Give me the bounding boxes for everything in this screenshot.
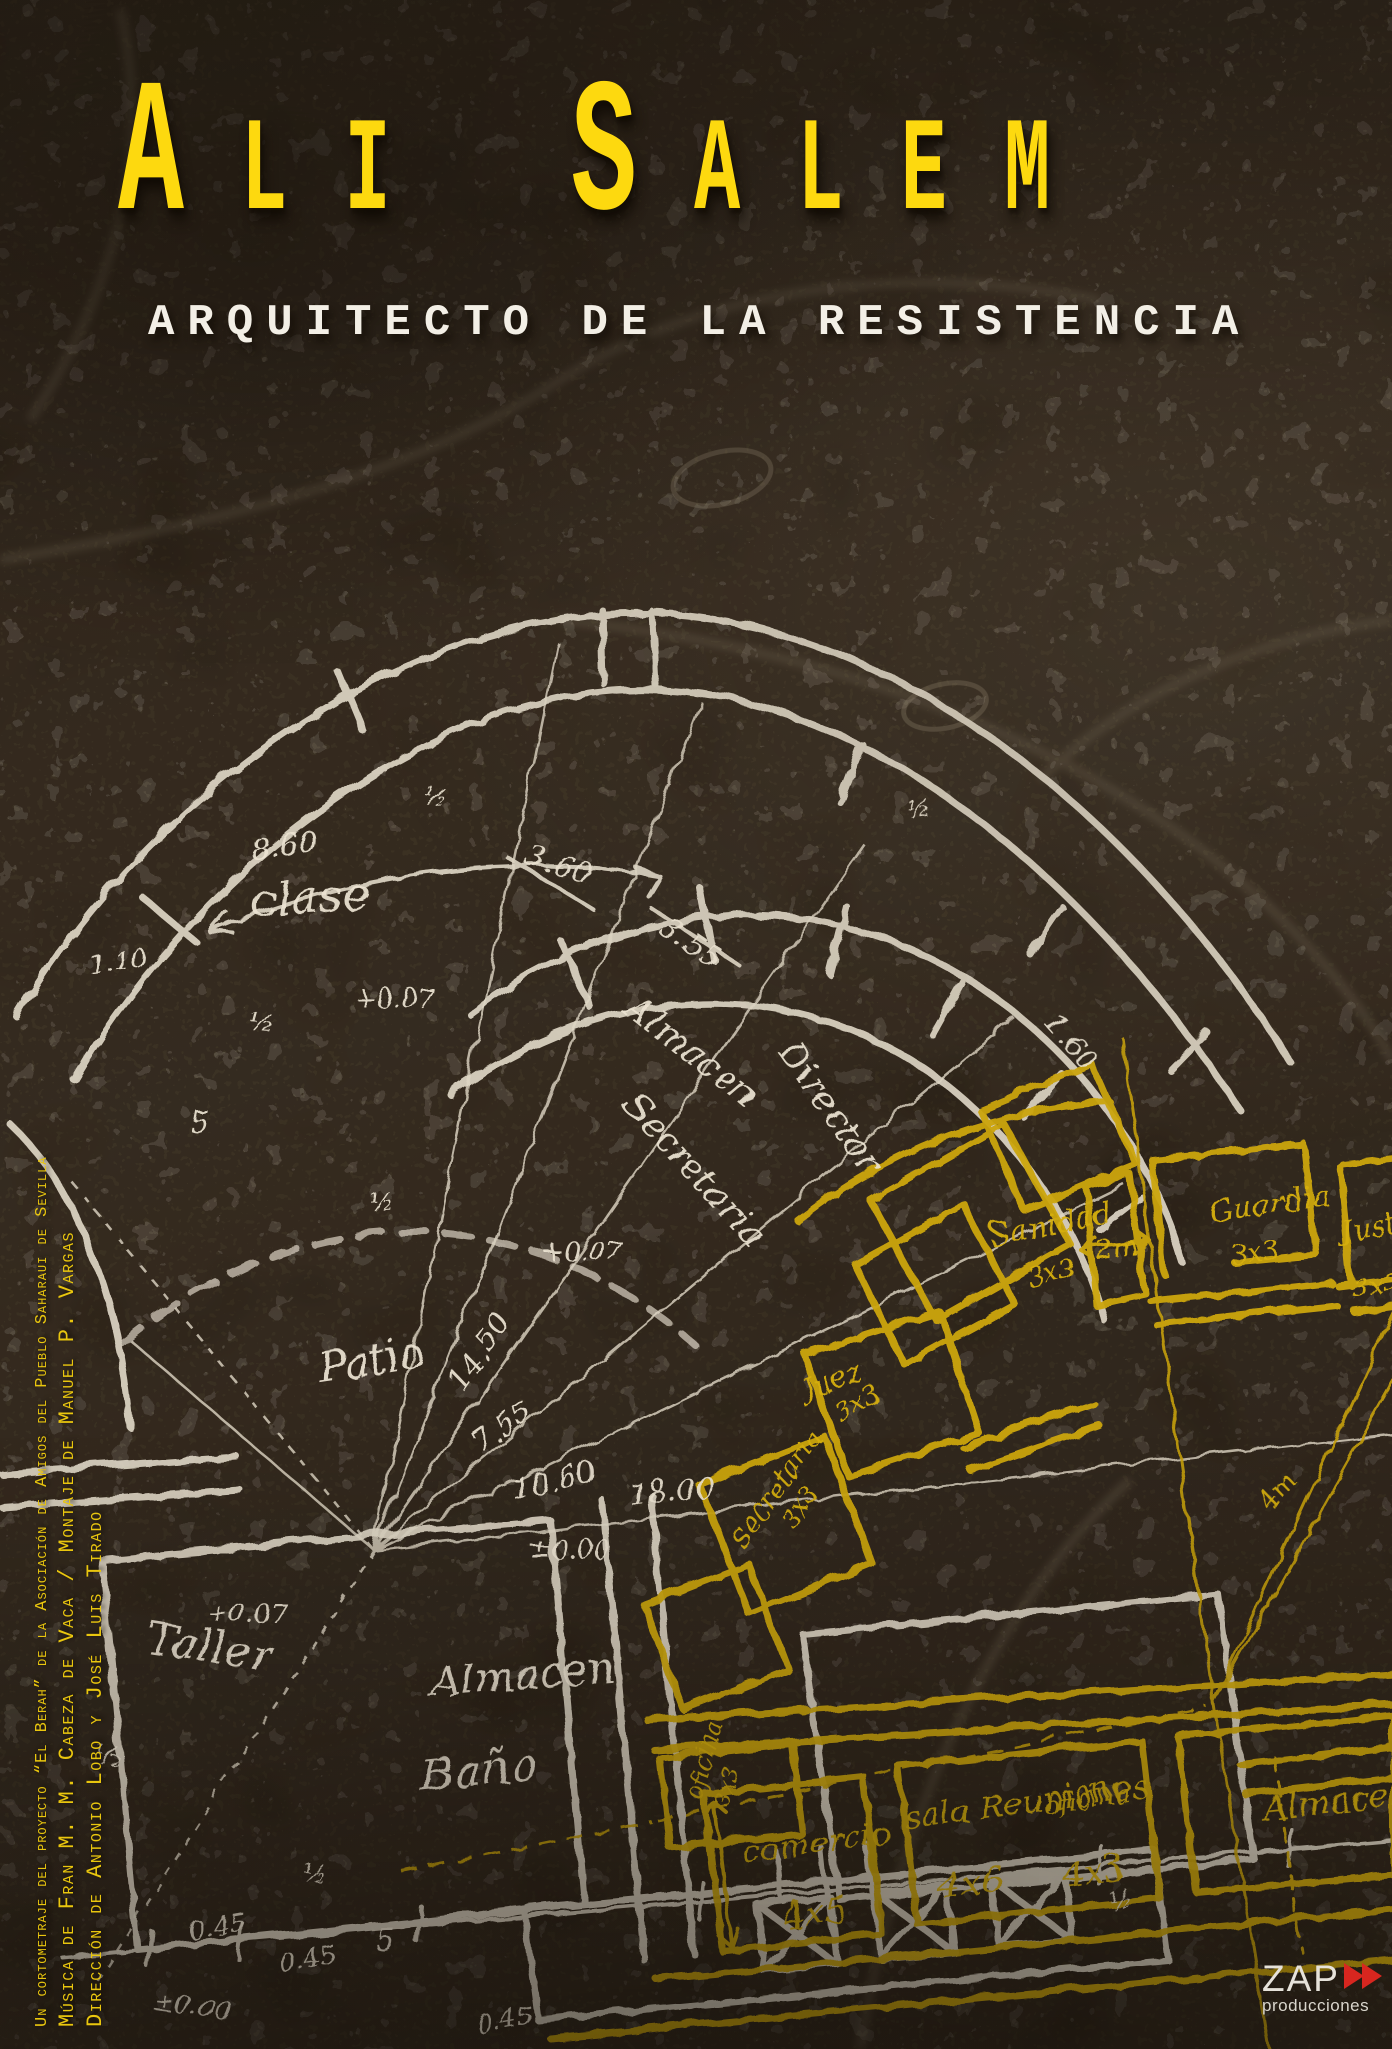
measure-secretaria-3x3: 3x3 [774, 1479, 822, 1531]
play-triangles-icon [1342, 1961, 1388, 1996]
room-label-almacen-bottom: Almacen [423, 1640, 615, 1705]
half-mark-2: ½ [903, 791, 929, 821]
room-label-sala-reuniones: sala Reuniones [901, 1764, 1149, 1836]
measure-2m: 2m [1092, 1229, 1138, 1265]
level-mark-000-b: ±0.00 [149, 1985, 232, 2026]
half-mark-5: ½ [299, 1856, 325, 1886]
logo-tagline: producciones [1262, 1997, 1388, 2016]
measure-0-45-b: 0.45 [274, 1937, 336, 1977]
half-mark-1: ½ [419, 778, 447, 810]
credit-line-direction: Dirección de Antonio Lobo y José Luis Ti… [83, 1510, 108, 2027]
level-mark-007-a: +0.07 [352, 982, 432, 1012]
credit-line-project: Un cortometraje del proyecto “El Berah” … [33, 1156, 52, 2027]
half-mark-3: ½ [250, 1008, 275, 1038]
measure-10-60: 10.60 [506, 1454, 597, 1506]
measure-4m: 4m [1253, 1465, 1302, 1517]
room-label-bano: Baño [415, 1735, 540, 1801]
logo-row: ZAP [1262, 1960, 1388, 1997]
room-label-taller: Taller [140, 1610, 277, 1681]
room-label-oficina-right: oficina [1039, 1777, 1130, 1819]
zap-producciones-logo: ZAP producciones [1262, 1960, 1388, 2016]
white-radial-lines [70, 640, 1392, 1980]
room-label-director: Director [767, 1031, 890, 1182]
white-plan-labels: clase Almacen Director Secretaria Patio … [85, 778, 1132, 2039]
level-mark-000-a: ±0.00 [528, 1533, 608, 1563]
title-block: Ali Salem ARQUITECTO DE LA RESISTENCIA [118, 64, 1378, 348]
yellow-plan-labels: Sanidad 3x3 Guardia 3x3 Justicia 3x3 Jue… [679, 1176, 1392, 1937]
measure-guardia-3x3: 3x3 [1227, 1233, 1278, 1269]
measure-0-45-c: 0.45 [472, 1999, 534, 2039]
measure-14-50: 14.50 [440, 1306, 518, 1396]
poster: clase Almacen Director Secretaria Patio … [0, 0, 1392, 2049]
half-mark-4: ½ [366, 1184, 391, 1214]
room-label-patio: Patio [312, 1326, 426, 1390]
measure-juez-3x3: 3x3 [827, 1377, 883, 1426]
measure-sanidad-3x3: 3x3 [1023, 1253, 1076, 1292]
film-title: Ali Salem [118, 64, 846, 254]
level-mark-007-c: +0.07 [205, 1597, 285, 1627]
logo-name: ZAP [1262, 1960, 1340, 1997]
yellow-plan-lines [548, 1062, 1392, 2036]
credit-line-music-editing: Música de Fran M. M. Cabeza de Vaca / Mo… [55, 1231, 80, 2027]
measure-5-b: 5 [188, 1103, 207, 1138]
measure-1-10: 1.10 [85, 941, 147, 979]
film-subtitle: ARQUITECTO DE LA RESISTENCIA [148, 298, 1378, 348]
